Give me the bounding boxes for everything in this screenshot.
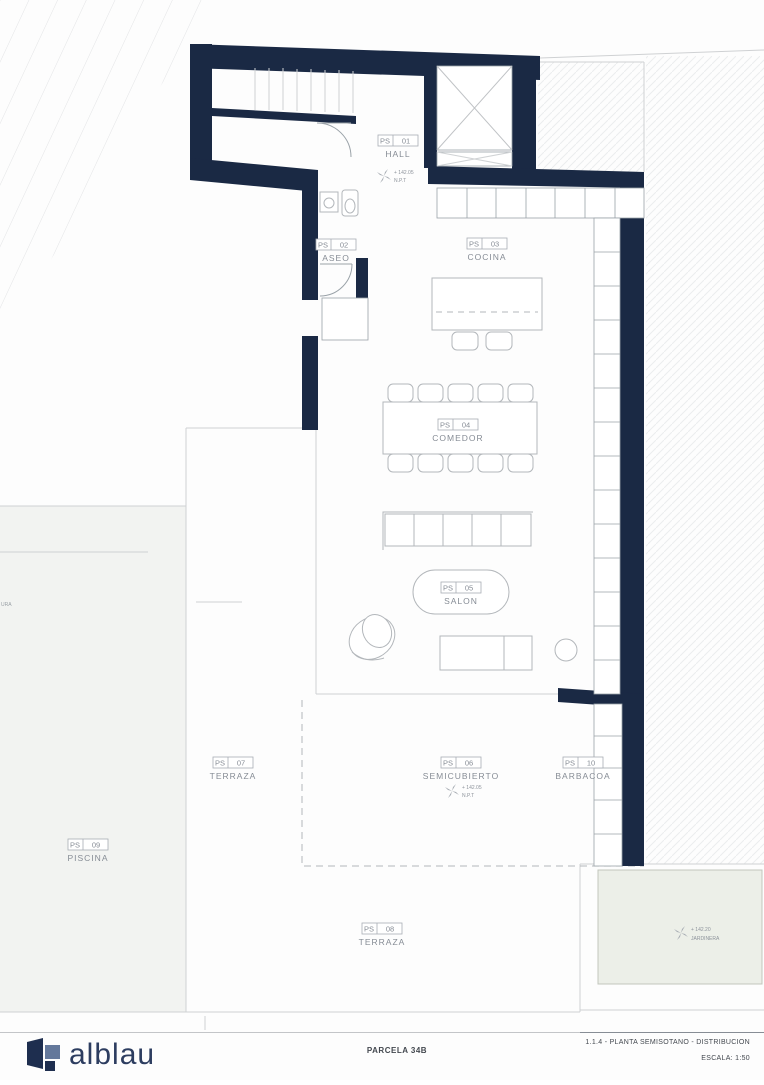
chair (478, 454, 503, 472)
chair (508, 454, 533, 472)
drawing-sheet: URA (0, 0, 764, 1080)
toilet-sink-fixtures (320, 190, 358, 216)
svg-text:SALON: SALON (444, 596, 478, 606)
svg-text:SEMICUBIERTO: SEMICUBIERTO (423, 771, 499, 781)
room-label-ps06: PS 06 SEMICUBIERTO (423, 757, 499, 781)
svg-text:03: 03 (491, 240, 499, 249)
room-label-ps07: PS 07 TERRAZA (210, 757, 257, 781)
svg-text:PS: PS (215, 759, 225, 768)
chair (448, 384, 473, 402)
svg-text:05: 05 (465, 584, 473, 593)
svg-text:PS: PS (443, 584, 453, 593)
room-label-ps02: PS 02 ASEO (316, 239, 356, 263)
chair (388, 454, 413, 472)
side-table (555, 639, 577, 661)
svg-text:02: 02 (340, 241, 348, 250)
svg-text:PS: PS (565, 759, 575, 768)
level-marker-semicubierto: + 142.05 N.P.T (445, 784, 482, 799)
chair (418, 454, 443, 472)
stool (486, 332, 512, 350)
svg-text:01: 01 (402, 137, 410, 146)
planter-area (598, 870, 762, 984)
sheet-scale: ESCALA: 1:50 (585, 1055, 750, 1062)
svg-text:07: 07 (237, 759, 245, 768)
svg-text:PS: PS (380, 137, 390, 146)
chair (388, 384, 413, 402)
sheet-title: 1.1.4 - PLANTA SEMISOTANO - DISTRIBUCION (585, 1039, 750, 1046)
level-marker-hall: + 142.05 N.P.T (377, 169, 414, 184)
chair (448, 454, 473, 472)
sheet-info: 1.1.4 - PLANTA SEMISOTANO - DISTRIBUCION… (585, 1039, 750, 1062)
footer-divider-dark (580, 1032, 764, 1033)
svg-text:ASEO: ASEO (322, 253, 350, 263)
svg-text:+ 142.20: + 142.20 (691, 927, 711, 933)
chair (418, 384, 443, 402)
sofa (383, 512, 533, 550)
svg-text:COMEDOR: COMEDOR (432, 433, 483, 443)
semicovered-dashed-boundary (302, 700, 644, 866)
room-label-ps08: PS 08 TERRAZA (359, 923, 406, 947)
kitchen-island (432, 278, 542, 350)
svg-text:PS: PS (318, 241, 328, 250)
stool (452, 332, 478, 350)
barbecue-cells (594, 704, 622, 866)
brand-logo: alblau (26, 1038, 155, 1072)
svg-text:10: 10 (587, 759, 595, 768)
kitchen-counter-cells (437, 188, 644, 218)
svg-text:N.P.T: N.P.T (462, 793, 474, 799)
svg-text:TERRAZA: TERRAZA (359, 937, 406, 947)
chair (478, 384, 503, 402)
svg-text:COCINA: COCINA (467, 252, 506, 262)
svg-text:HALL: HALL (385, 149, 410, 159)
chair (508, 384, 533, 402)
svg-text:PS: PS (70, 841, 80, 850)
svg-text:BARBACOA: BARBACOA (555, 771, 610, 781)
brand-name: alblau (69, 1040, 155, 1070)
boundary-label-fragment: URA (1, 602, 12, 608)
storeroom-door (317, 123, 351, 157)
benchmark-icon (445, 784, 459, 798)
svg-text:04: 04 (462, 421, 470, 430)
svg-text:PS: PS (364, 925, 374, 934)
pool-area (0, 506, 186, 1012)
lounge-chair (341, 608, 403, 668)
svg-text:JARDINERA: JARDINERA (691, 936, 720, 942)
svg-text:TERRAZA: TERRAZA (210, 771, 257, 781)
closet (322, 298, 368, 340)
coffee-table (440, 636, 532, 670)
svg-text:06: 06 (465, 759, 473, 768)
elevator (437, 66, 512, 166)
svg-text:PS: PS (469, 240, 479, 249)
svg-text:N.P.T: N.P.T (394, 178, 406, 184)
svg-text:PISCINA: PISCINA (67, 853, 108, 863)
brand-logo-mark (26, 1038, 62, 1072)
floor-plan: URA (0, 0, 764, 1080)
parcel-label: PARCELA 34B (312, 1046, 482, 1055)
svg-text:08: 08 (386, 925, 394, 934)
room-label-ps01: PS 01 HALL (378, 135, 418, 159)
aseo-door (320, 264, 352, 296)
room-label-ps03: PS 03 COCINA (467, 238, 507, 262)
svg-text:09: 09 (92, 841, 100, 850)
benchmark-icon (377, 169, 391, 183)
svg-text:PS: PS (440, 421, 450, 430)
right-shelf-cells (594, 218, 620, 694)
stairs (255, 68, 353, 113)
svg-text:PS: PS (443, 759, 453, 768)
svg-text:+ 142.05: + 142.05 (462, 785, 482, 791)
title-block: alblau PARCELA 34B 1.1.4 - PLANTA SEMISO… (0, 1030, 764, 1080)
svg-text:+ 142.05: + 142.05 (394, 170, 414, 176)
